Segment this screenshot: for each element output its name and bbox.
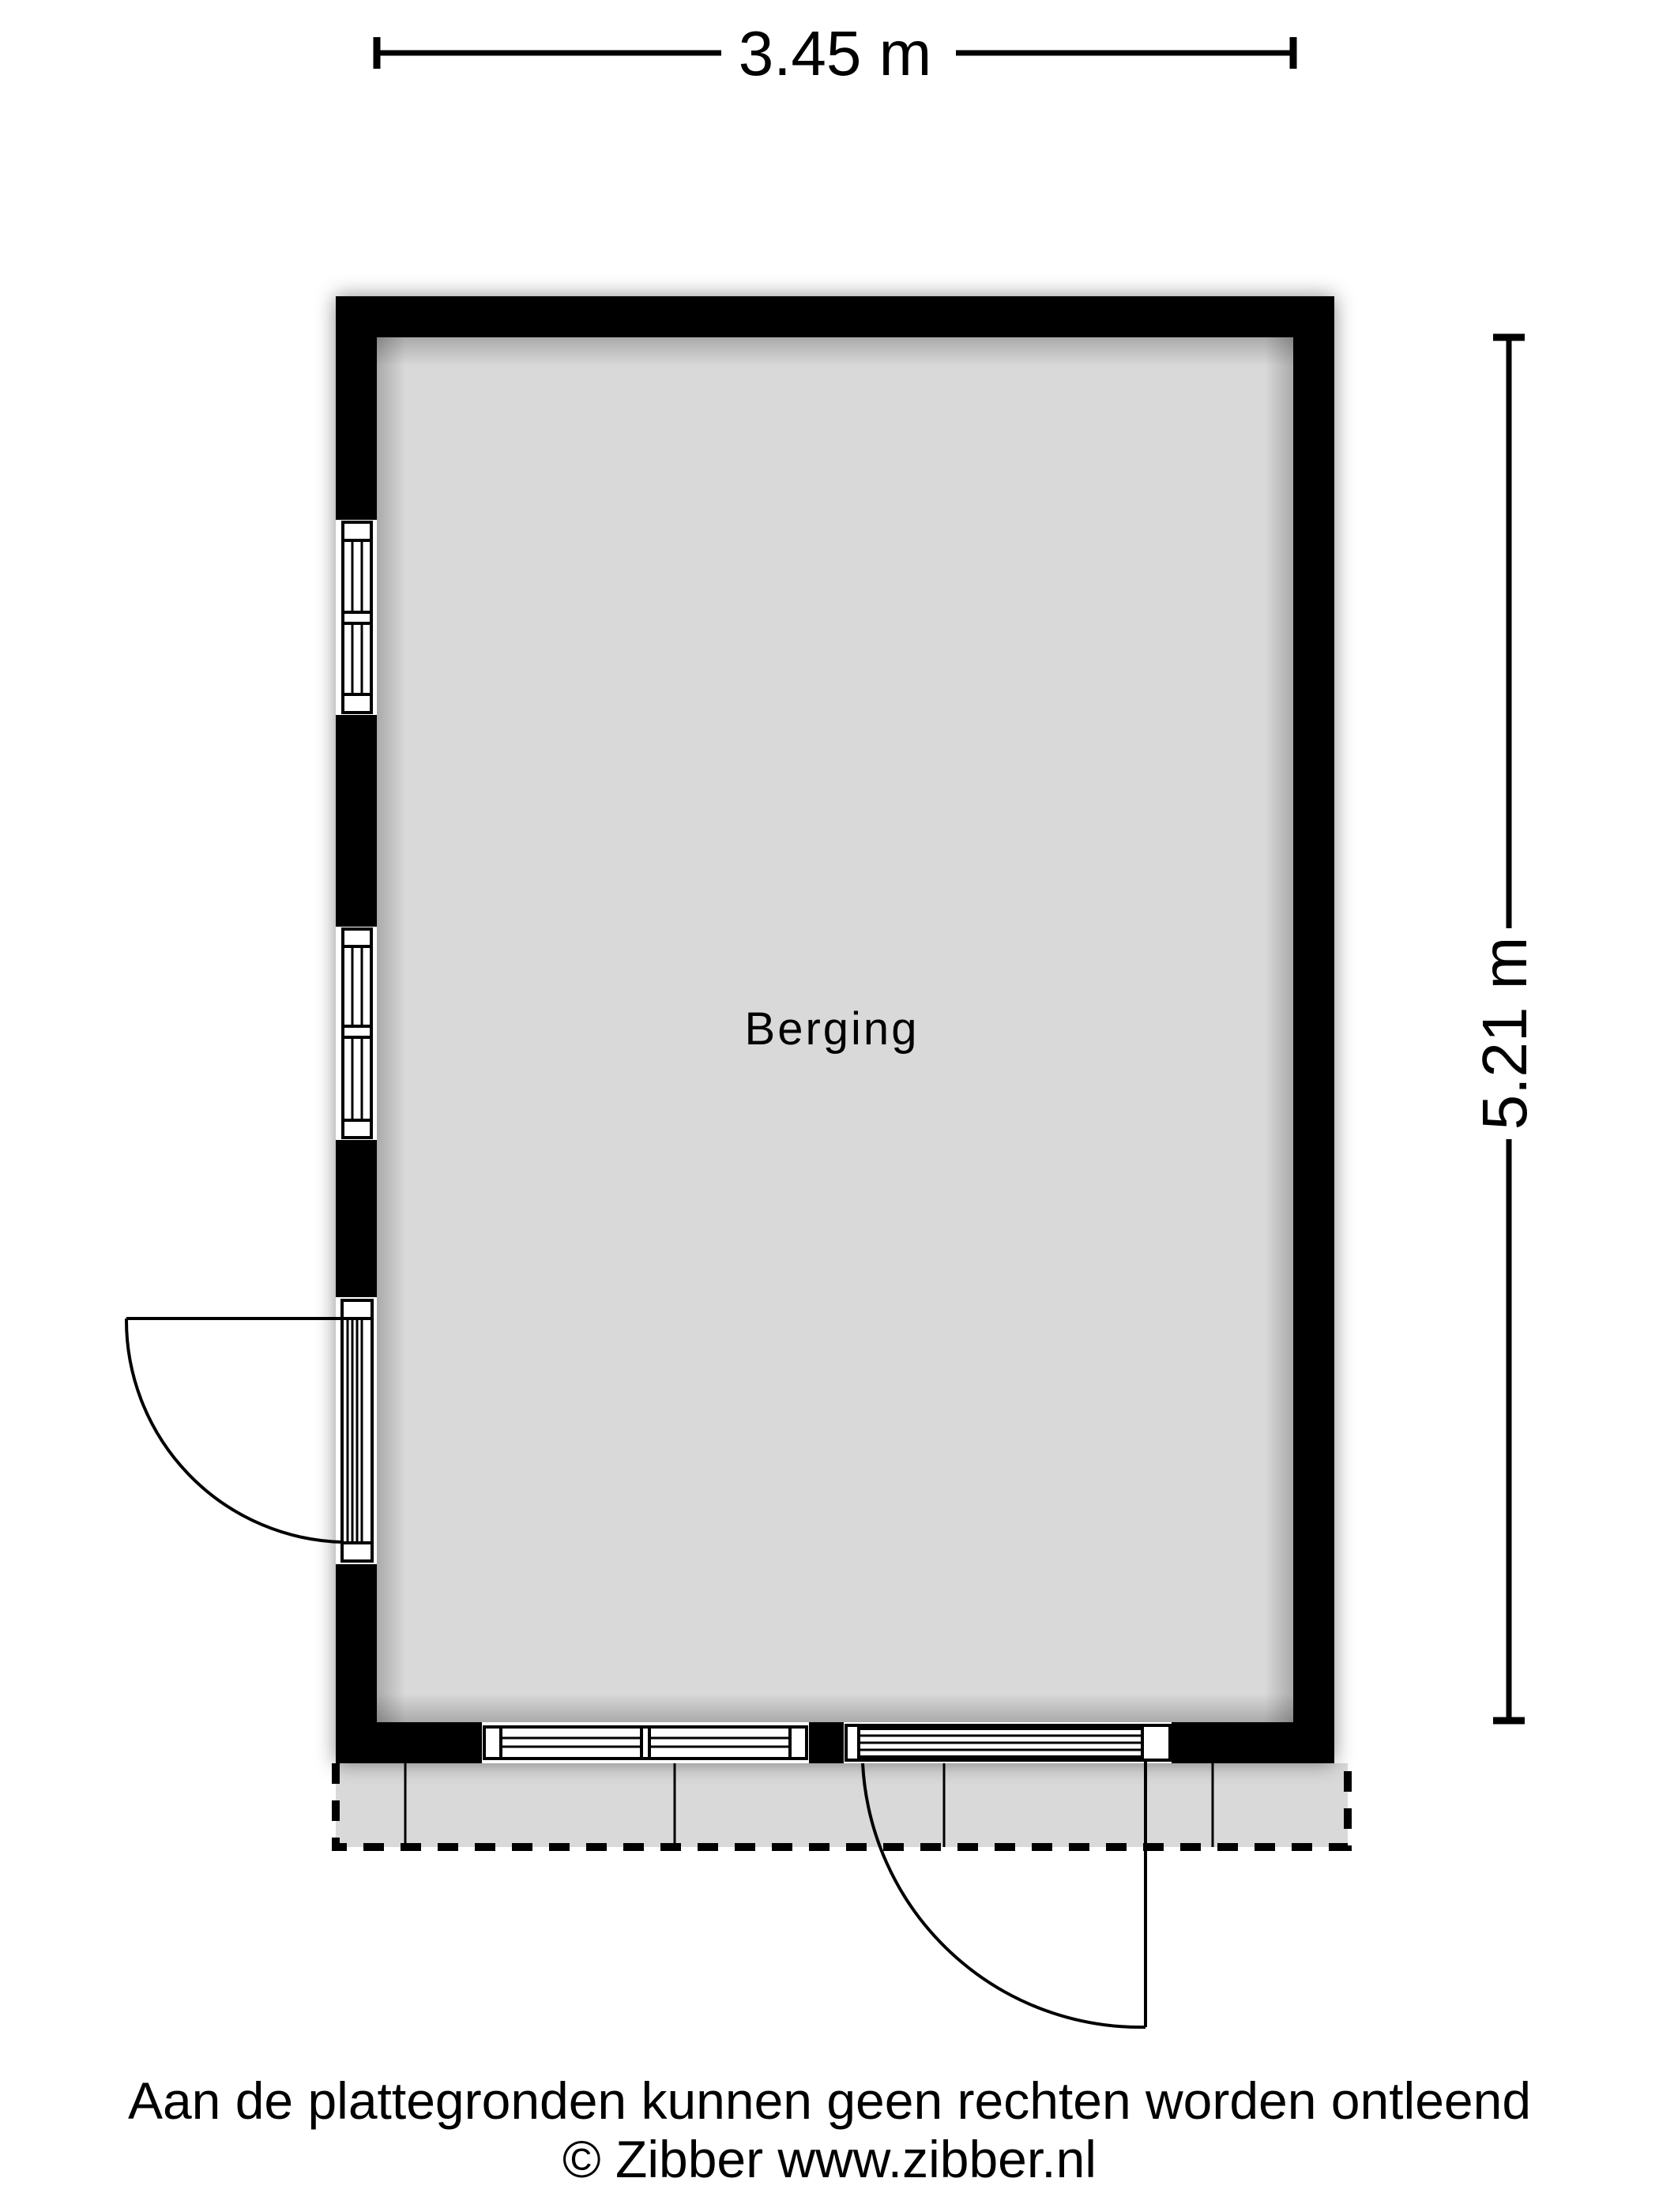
disclaimer-text: Aan de plattegronden kunnen geen rechten… [128,2071,1531,2130]
floor-shadow-left [377,337,405,1722]
height-dimension-label: 5.21 m [1469,937,1540,1130]
bottom-wall-pier [809,1722,844,1763]
terrace [336,1763,1348,1847]
copyright-text: © Zibber www.zibber.nl [562,2130,1097,2188]
width-dimension-label: 3.45 m [739,18,932,88]
left-door-swing-arc [126,1319,342,1542]
bottom-door [844,1722,1172,1763]
room-label: Berging [745,1003,920,1055]
bottom-window [482,1722,809,1763]
left-window-2 [336,927,377,1140]
left-door-swing [126,1319,342,1542]
left-entry-door [336,1297,377,1564]
left-window-1 [336,520,377,715]
floor-shadow-top [377,337,1293,366]
floor-shadow-bottom [377,1694,1293,1722]
floorplan-svg: 3.45 m 5.21 m Berging Aan de plattegrond… [0,0,1659,2212]
terrace-surface [336,1763,1348,1847]
floorplan-page: 3.45 m 5.21 m Berging Aan de plattegrond… [0,0,1659,2212]
floor-shadow-right [1265,337,1293,1722]
